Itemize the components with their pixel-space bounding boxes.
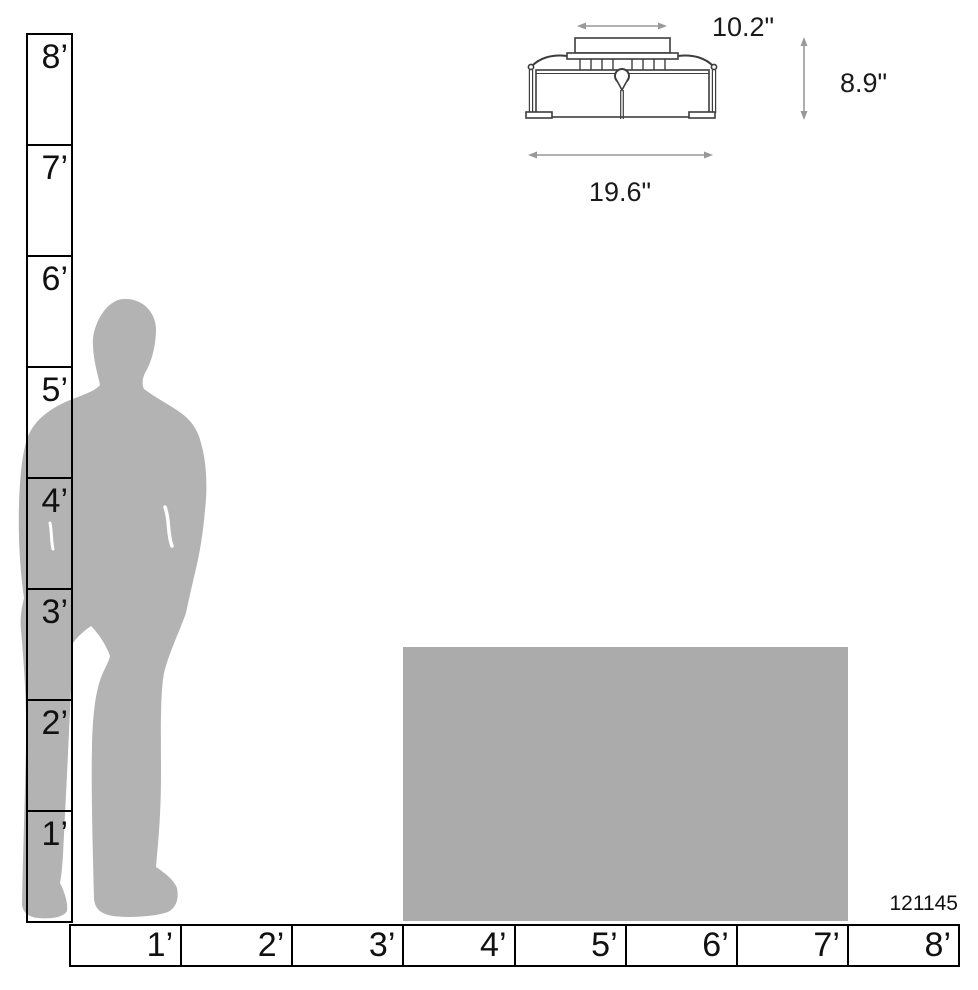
horizontal-ruler-cell-2ft: 2’	[182, 926, 293, 965]
fixture-canopy	[575, 38, 670, 53]
table-rectangle	[403, 647, 848, 921]
vertical-ruler-cell-3ft: 3’	[28, 590, 71, 701]
horizontal-ruler-cell-7ft: 7’	[738, 926, 849, 965]
width-dimension: 19.6"	[528, 152, 713, 208]
vertical-ruler-cell-8ft: 8’	[28, 35, 71, 146]
fixture-arm-left	[531, 55, 567, 67]
arrow-left-icon	[577, 23, 586, 30]
fixture-mount-band	[567, 53, 678, 59]
arrow-left-icon	[528, 152, 537, 159]
horizontal-ruler-cell-4ft: 4’	[404, 926, 515, 965]
item-number: 121145	[808, 892, 958, 916]
width-label: 19.6"	[589, 177, 651, 207]
horizontal-ruler-cell-6ft: 6’	[627, 926, 738, 965]
fixture-foot-left	[526, 112, 552, 118]
horizontal-ruler-cell-8ft: 8’	[849, 926, 958, 965]
fixture-arm-right	[678, 55, 714, 67]
arrow-down-icon	[801, 111, 808, 120]
vertical-ruler-cell-2ft: 2’	[28, 701, 71, 812]
horizontal-ruler-cell-5ft: 5’	[516, 926, 627, 965]
scale-diagram: 10.2"	[0, 0, 978, 990]
horizontal-ruler-cell-1ft: 1’	[71, 926, 182, 965]
arrow-right-icon	[658, 23, 667, 30]
vertical-ruler-cell-1ft: 1’	[28, 812, 71, 921]
vertical-ruler: 8’ 7’ 6’ 5’ 4’ 3’ 2’ 1’	[26, 33, 73, 923]
canopy-width-label: 10.2"	[712, 12, 774, 42]
horizontal-ruler-cell-3ft: 3’	[293, 926, 404, 965]
horizontal-ruler: 1’ 2’ 3’ 4’ 5’ 6’ 7’ 8’	[69, 924, 960, 967]
fixture-foot-right	[689, 112, 715, 118]
fixture-body	[526, 38, 717, 119]
arrow-right-icon	[704, 152, 713, 159]
vertical-ruler-cell-5ft: 5’	[28, 368, 71, 479]
vertical-ruler-cell-4ft: 4’	[28, 479, 71, 590]
vertical-ruler-cell-6ft: 6’	[28, 257, 71, 368]
arrow-up-icon	[801, 37, 808, 46]
vertical-ruler-cell-7ft: 7’	[28, 146, 71, 257]
height-label: 8.9"	[840, 68, 887, 98]
height-dimension: 8.9"	[801, 37, 888, 120]
fixture-drawing: 10.2"	[500, 5, 930, 215]
